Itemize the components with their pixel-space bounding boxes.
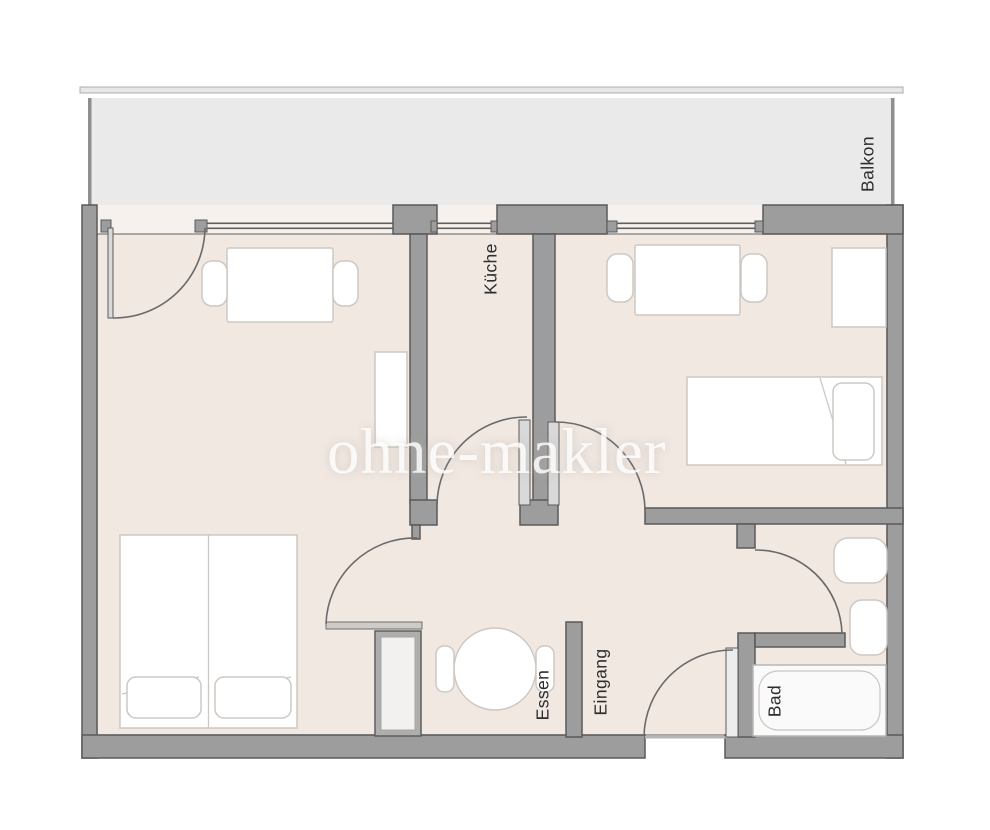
room-label-kueche: Küche [481, 243, 502, 295]
balcony-edge-line [80, 87, 903, 93]
wall-kitchen-left-foot [410, 500, 437, 525]
kitchen-door-leaf [519, 420, 530, 505]
window-nub [491, 221, 497, 232]
pillow-right [215, 677, 291, 718]
window-bedroom [607, 228, 763, 230]
wardrobe [832, 248, 886, 327]
floorplan-canvas: Balkon Küche Essen Eingang Bad ohne-makl… [0, 0, 990, 830]
window-nub [607, 221, 617, 232]
window-bedroom [607, 223, 763, 225]
wall-essen-eingang-stub [566, 622, 582, 737]
toilet [850, 600, 887, 655]
wall-kitchen-left [410, 234, 427, 503]
wall-pier-top-right [763, 205, 903, 234]
wall-outer-left [82, 205, 97, 758]
round-dining-table [454, 628, 536, 710]
wall-pier-top-2 [497, 205, 607, 234]
wall-bedroom-bath-divider [645, 508, 903, 524]
room-label-eingang: Eingang [591, 648, 612, 715]
window-living [207, 228, 393, 230]
entrance-threshold [645, 736, 727, 739]
wall-kitchen-left-stub [412, 525, 420, 539]
balcony-door-leaf [108, 228, 113, 318]
tall-cabinet-inner [381, 637, 415, 730]
entrance-door-leaf [726, 648, 738, 737]
balcony-floor [90, 98, 893, 205]
wall-pier-top-1 [393, 205, 437, 234]
wall-outer-bottom-left [82, 735, 645, 758]
window-living [207, 223, 393, 225]
room-label-bad: Bad [765, 685, 786, 717]
window-kitchen [437, 228, 497, 230]
wall-outer-bottom-right [725, 735, 903, 758]
room-label-balkon: Balkon [858, 136, 879, 192]
wall-thin-partition [326, 622, 422, 629]
bedroom-chair-right [741, 254, 767, 302]
floorplan-drawing [0, 0, 990, 830]
living-table [227, 248, 333, 322]
balcony-railing-right [891, 98, 895, 205]
window-nub [755, 221, 763, 232]
balcony-railing-left [88, 98, 92, 205]
bedroom-chair-left [607, 254, 633, 302]
living-chair-right [333, 261, 358, 306]
room-label-essen: Essen [533, 670, 554, 721]
living-chair-left [202, 261, 227, 306]
wall-outer-right [887, 205, 903, 758]
bedroom-door-leaf [548, 422, 559, 505]
balcony-area [80, 87, 903, 205]
dining-chair-left [436, 646, 454, 692]
single-bed-pillow [833, 383, 874, 460]
window-nub [431, 221, 437, 232]
sink [834, 538, 887, 583]
sideboard [375, 352, 407, 447]
window-kitchen [437, 223, 497, 225]
bedroom-table [635, 245, 740, 315]
wall-bath-top-lower [755, 633, 845, 647]
wall-bath-door-stub [737, 524, 755, 548]
pillow-left [127, 677, 201, 718]
